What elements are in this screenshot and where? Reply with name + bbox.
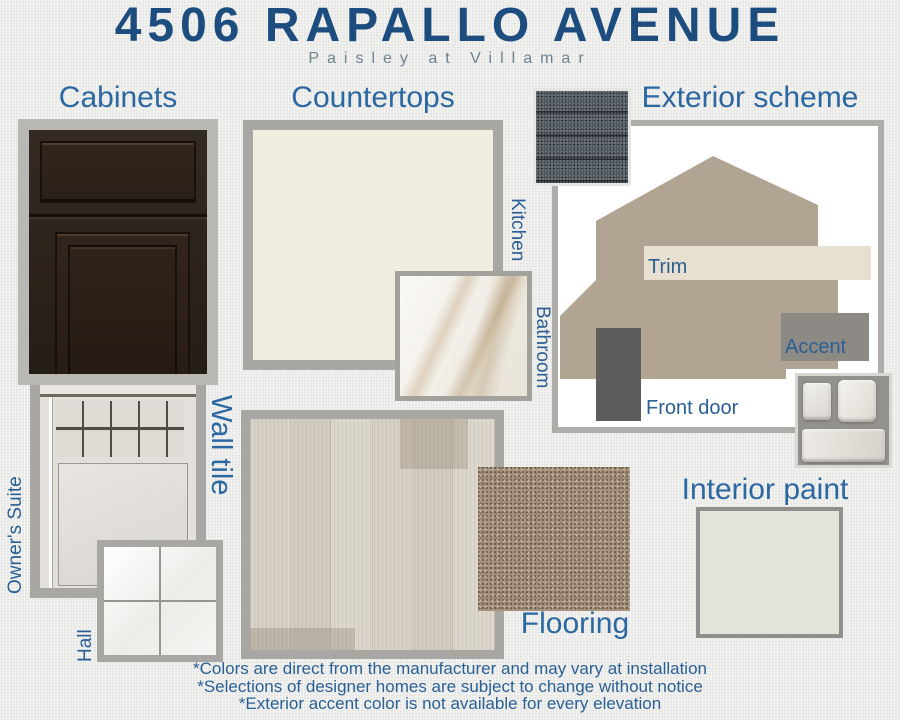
exterior-scheme-title: Exterior scheme [610, 82, 890, 114]
kitchen-label: Kitchen [507, 198, 528, 261]
page-title: 4506 RAPALLO AVENUE [0, 2, 900, 50]
front-door-swatch [596, 328, 641, 421]
interior-paint-title: Interior paint [655, 474, 875, 506]
countertops-title: Countertops [243, 82, 503, 114]
flooring-title: Flooring [495, 608, 655, 640]
plank-shade-patch [250, 628, 355, 650]
disclaimer-block: *Colors are direct from the manufacturer… [0, 660, 900, 713]
disclaimer-line: *Colors are direct from the manufacturer… [0, 660, 900, 678]
tile-mosaic-band [56, 401, 184, 457]
stone-accent-swatch [795, 373, 892, 468]
design-board: { "header": { "title": "4506 RAPALLO AVE… [0, 0, 900, 720]
plank-shade-patch [400, 419, 468, 469]
stone-block [802, 429, 886, 462]
hall-tile-swatch [97, 540, 223, 662]
stone-block [803, 383, 830, 420]
trim-label: Trim [648, 257, 687, 278]
accent-label: Accent [785, 337, 846, 358]
disclaimer-line: *Selections of designer homes are subjec… [0, 678, 900, 696]
flooring-plank-swatch [241, 410, 504, 659]
page-subtitle: Paisley at Villamar [0, 50, 900, 68]
cabinets-title: Cabinets [18, 82, 218, 114]
owners-suite-label: Owner's Suite [5, 476, 26, 594]
cabinet-swatch [18, 119, 218, 385]
stone-block [838, 380, 876, 423]
roof-shingle-swatch [533, 88, 631, 186]
interior-paint-swatch [696, 507, 843, 638]
front-door-label: Front door [646, 398, 738, 419]
bathroom-countertop-swatch [395, 271, 532, 401]
hall-label: Hall [75, 629, 96, 662]
cabinet-door [55, 232, 190, 374]
carpet-swatch [478, 467, 630, 611]
disclaimer-line: *Exterior accent color is not available … [0, 695, 900, 713]
cabinet-rail [29, 214, 207, 217]
cabinet-drawer-front [40, 141, 196, 203]
wall-tile-label: Wall tile [205, 395, 237, 495]
bathroom-label: Bathroom [532, 306, 553, 388]
cabinet-door-panel [68, 245, 177, 374]
